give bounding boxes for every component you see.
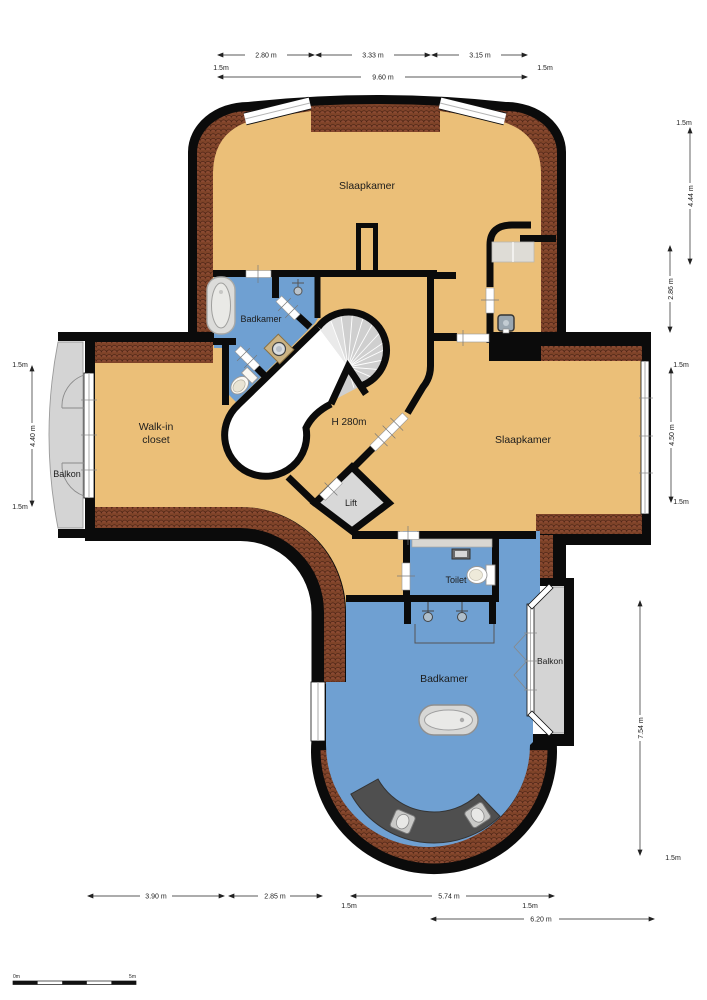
svg-text:4.40 m: 4.40 m — [30, 425, 37, 447]
svg-text:Walk-in: Walk-in — [139, 421, 174, 433]
svg-text:1.5m: 1.5m — [665, 855, 681, 862]
svg-text:Lift: Lift — [345, 498, 358, 508]
svg-text:1.5m: 1.5m — [12, 504, 28, 511]
svg-text:7.54 m: 7.54 m — [638, 717, 645, 739]
svg-text:1.5m: 1.5m — [522, 903, 538, 910]
svg-text:5m: 5m — [129, 974, 136, 980]
svg-text:4.44 m: 4.44 m — [688, 185, 695, 207]
svg-text:1.5m: 1.5m — [673, 362, 689, 369]
svg-text:closet: closet — [142, 434, 170, 446]
svg-text:1.5m: 1.5m — [12, 362, 28, 369]
svg-text:4.50 m: 4.50 m — [669, 424, 676, 446]
svg-text:1.5m: 1.5m — [673, 499, 689, 506]
svg-text:2.86 m: 2.86 m — [668, 278, 675, 300]
svg-text:2.85 m: 2.85 m — [264, 894, 286, 901]
svg-text:0m: 0m — [13, 974, 20, 980]
svg-text:1.5m: 1.5m — [341, 903, 357, 910]
svg-text:2.80 m: 2.80 m — [255, 53, 277, 60]
svg-text:3.15 m: 3.15 m — [469, 53, 491, 60]
svg-text:6.20 m: 6.20 m — [530, 917, 552, 924]
svg-text:3.90 m: 3.90 m — [145, 894, 167, 901]
svg-text:Balkon: Balkon — [537, 656, 563, 666]
svg-text:Badkamer: Badkamer — [420, 673, 468, 685]
svg-text:Balkon: Balkon — [53, 469, 81, 479]
svg-text:Toilet: Toilet — [445, 575, 467, 585]
svg-text:5.74 m: 5.74 m — [438, 894, 460, 901]
svg-text:3.33 m: 3.33 m — [362, 53, 384, 60]
svg-text:Slaapkamer: Slaapkamer — [339, 180, 396, 192]
svg-text:H 280m: H 280m — [331, 417, 366, 428]
svg-text:Badkamer: Badkamer — [240, 314, 281, 324]
svg-text:1.5m: 1.5m — [676, 120, 692, 127]
svg-text:9.60 m: 9.60 m — [372, 75, 394, 82]
svg-text:Slaapkamer: Slaapkamer — [495, 434, 552, 446]
svg-text:1.5m: 1.5m — [213, 65, 229, 72]
svg-text:1.5m: 1.5m — [537, 65, 553, 72]
